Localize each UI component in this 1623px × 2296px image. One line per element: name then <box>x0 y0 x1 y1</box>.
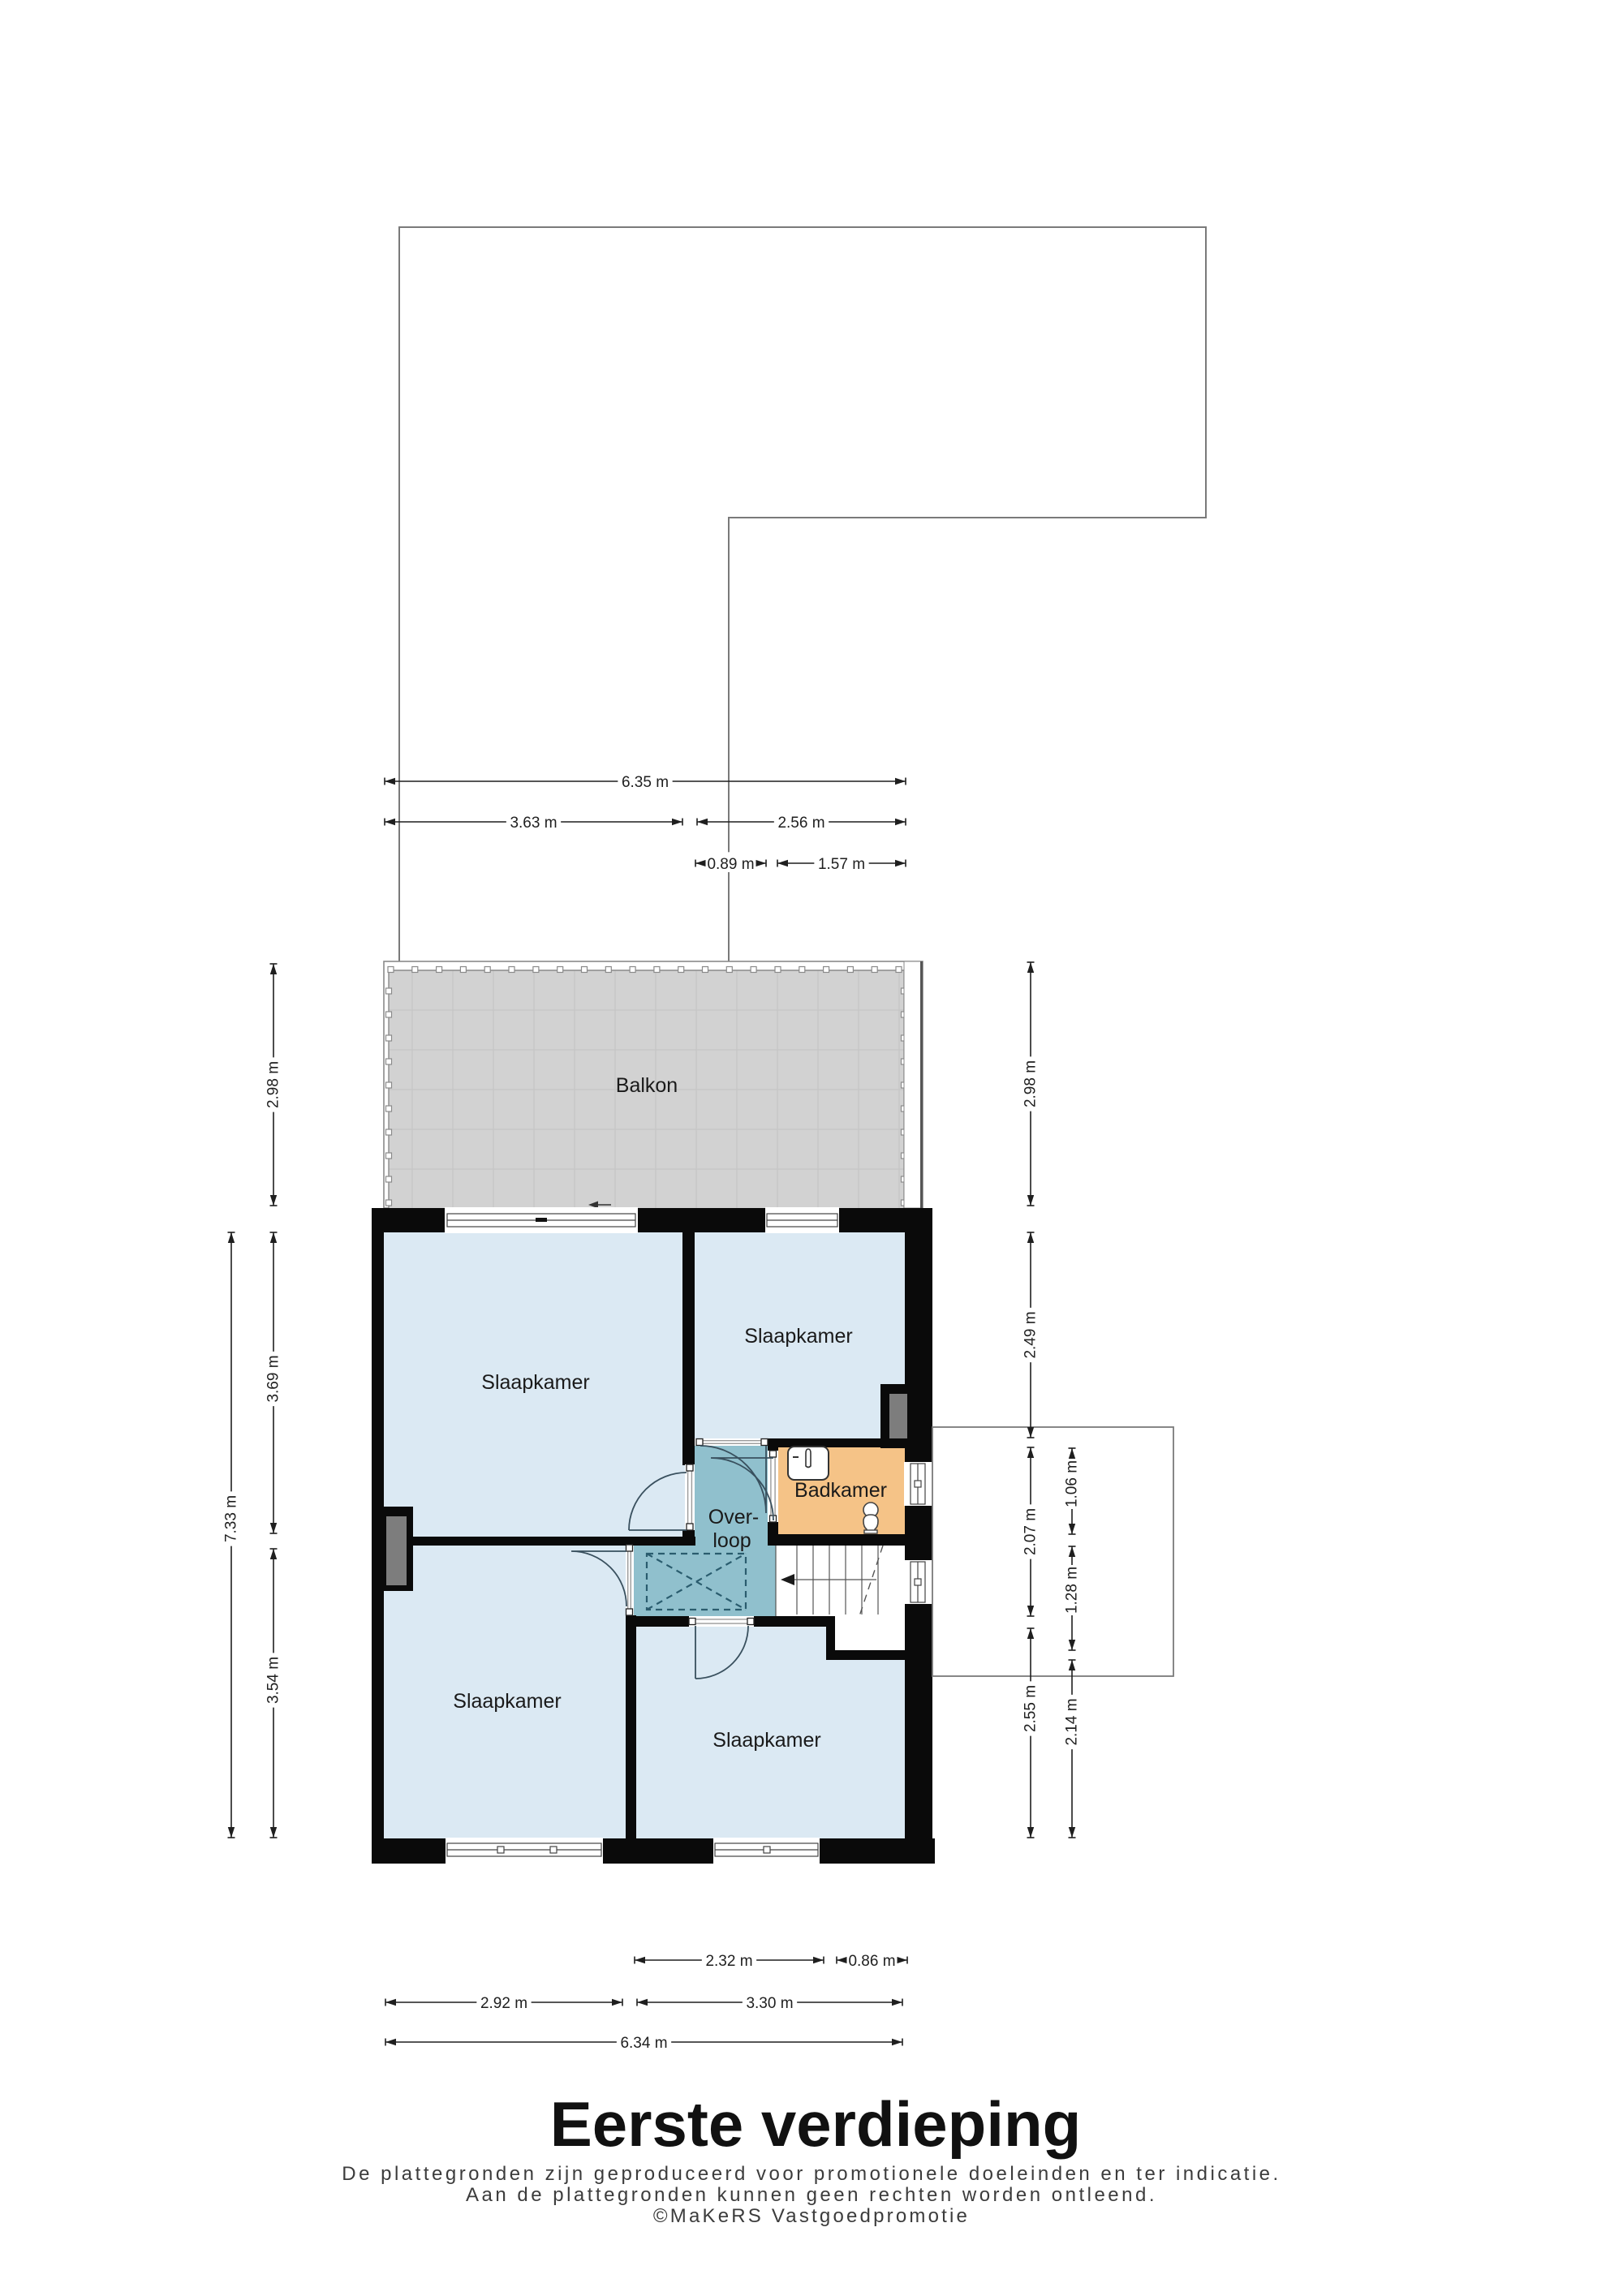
svg-text:1.57 m: 1.57 m <box>818 856 865 873</box>
svg-text:Slaapkamer: Slaapkamer <box>744 1325 852 1348</box>
svg-text:Over-: Over- <box>708 1506 760 1529</box>
svg-text:Aan de plattegronden kunnen ge: Aan de plattegronden kunnen geen rechten… <box>466 2184 1157 2206</box>
svg-text:Badkamer: Badkamer <box>794 1479 887 1502</box>
svg-text:2.32 m: 2.32 m <box>705 1953 752 1970</box>
svg-text:©MaKeRS Vastgoedpromotie: ©MaKeRS Vastgoedpromotie <box>653 2205 970 2227</box>
svg-text:3.54 m: 3.54 m <box>265 1657 282 1704</box>
svg-text:2.98 m: 2.98 m <box>265 1061 282 1108</box>
svg-text:2.98 m: 2.98 m <box>1022 1060 1040 1107</box>
svg-text:6.34 m: 6.34 m <box>620 2035 667 2052</box>
svg-text:1.06 m: 1.06 m <box>1064 1460 1081 1507</box>
svg-text:Balkon: Balkon <box>616 1074 678 1097</box>
svg-text:Eerste verdieping: Eerste verdieping <box>550 2088 1082 2160</box>
svg-text:Slaapkamer: Slaapkamer <box>453 1690 561 1713</box>
svg-text:Slaapkamer: Slaapkamer <box>712 1729 820 1752</box>
svg-text:3.69 m: 3.69 m <box>265 1355 282 1402</box>
svg-text:3.63 m: 3.63 m <box>510 815 557 832</box>
svg-text:2.56 m: 2.56 m <box>777 815 824 832</box>
svg-text:De plattegronden zijn geproduc: De plattegronden zijn geproduceerd voor … <box>342 2163 1281 2185</box>
svg-text:Slaapkamer: Slaapkamer <box>481 1371 589 1394</box>
svg-text:6.35 m: 6.35 m <box>622 774 669 791</box>
svg-text:2.14 m: 2.14 m <box>1064 1698 1081 1745</box>
svg-text:1.28 m: 1.28 m <box>1064 1567 1081 1614</box>
svg-text:loop: loop <box>712 1529 751 1552</box>
svg-text:2.55 m: 2.55 m <box>1022 1685 1040 1732</box>
svg-text:7.33 m: 7.33 m <box>223 1495 240 1542</box>
svg-text:2.07 m: 2.07 m <box>1022 1508 1040 1555</box>
svg-text:2.49 m: 2.49 m <box>1022 1311 1040 1358</box>
svg-text:0.89 m: 0.89 m <box>707 856 754 873</box>
svg-text:0.86 m: 0.86 m <box>848 1953 895 1970</box>
svg-text:2.92 m: 2.92 m <box>480 1995 527 2012</box>
svg-text:3.30 m: 3.30 m <box>746 1995 793 2012</box>
